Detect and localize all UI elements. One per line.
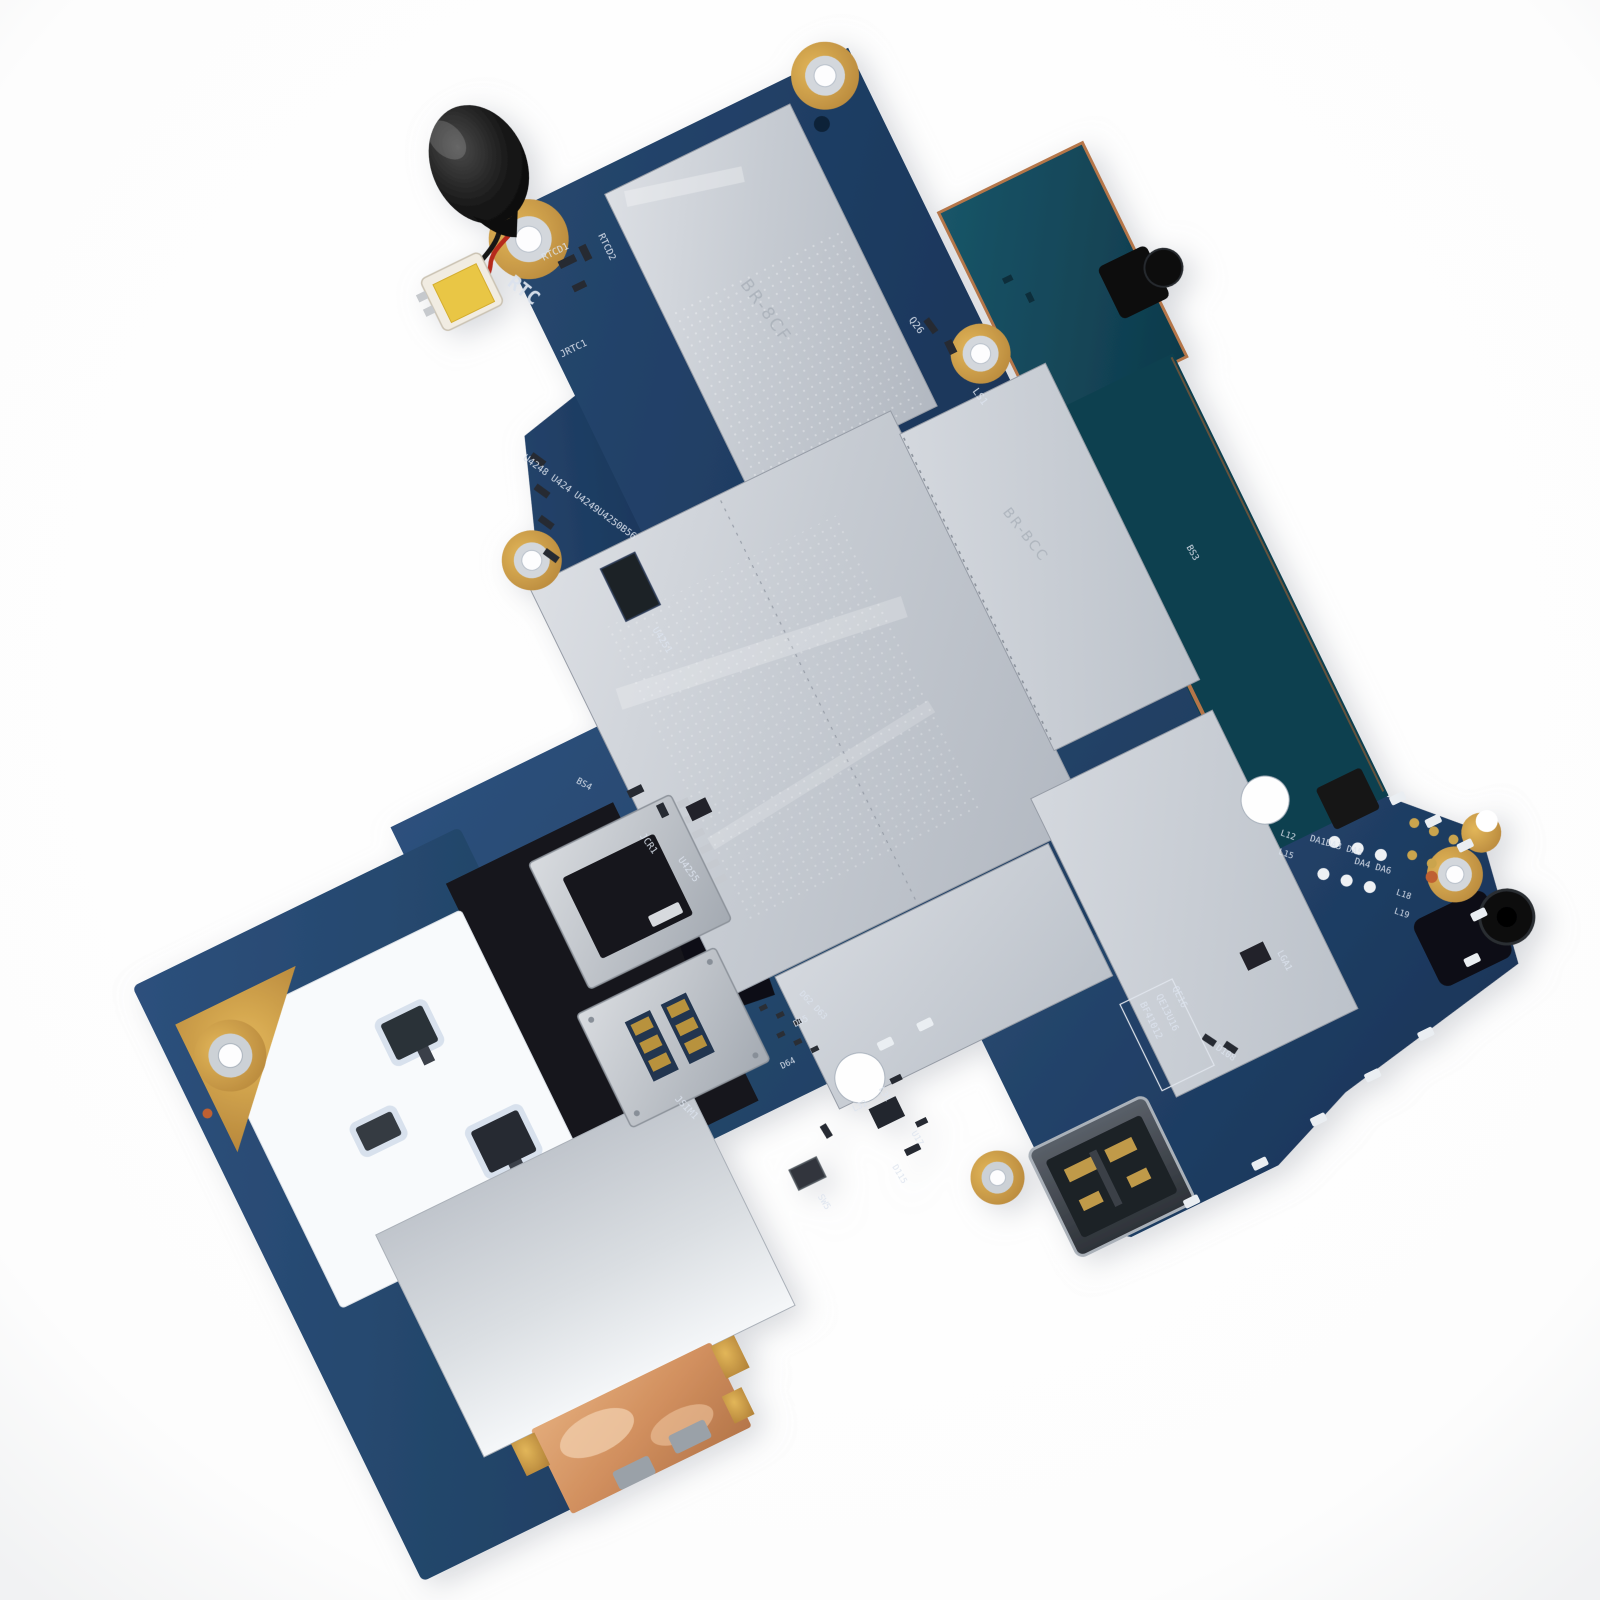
motherboard-photo: BR-8CF BR-BCC	[0, 0, 1600, 1600]
photo-canvas: BR-8CF BR-BCC	[0, 0, 1600, 1600]
